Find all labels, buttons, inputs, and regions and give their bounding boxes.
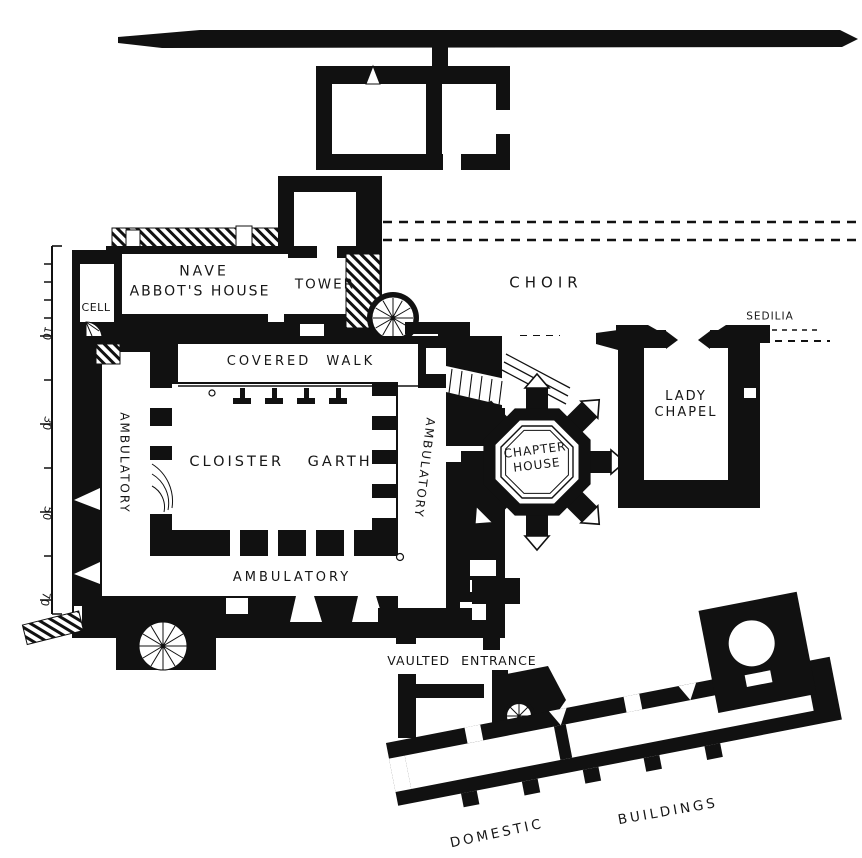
label-cell: CELL bbox=[82, 301, 111, 315]
nave-block bbox=[72, 176, 390, 352]
label-lady-chapel: LADY CHAPEL bbox=[654, 389, 717, 422]
scale-tick-10: 10 bbox=[39, 325, 55, 341]
label-nave: NAVE bbox=[179, 263, 229, 281]
label-ambulatory-west: AMBULATORY bbox=[117, 412, 132, 514]
label-lady-chapel-line2: CHAPEL bbox=[654, 405, 717, 421]
scale-tick-70: 70 bbox=[37, 591, 53, 607]
gatehouse bbox=[316, 44, 511, 172]
label-tower: TOWER bbox=[295, 277, 355, 294]
scale-tick-50: 50 bbox=[39, 505, 55, 521]
abbey-ground-plan: NAVE ABBOT'S HOUSE CELL TOWER CHOIR SEDI… bbox=[0, 0, 862, 858]
label-cloister-garth: CLOISTER GARTH bbox=[189, 453, 372, 471]
label-sedilia: SEDILIA bbox=[746, 310, 794, 323]
cloister bbox=[72, 336, 505, 638]
label-vaulted-entrance: VAULTED ENTRANCE bbox=[387, 653, 536, 669]
scale-tick-30: 30 bbox=[39, 415, 55, 431]
label-ambulatory-south: AMBULATORY bbox=[233, 570, 351, 586]
label-abbots-house: ABBOT'S HOUSE bbox=[130, 283, 271, 301]
precinct-wall bbox=[118, 30, 858, 48]
label-lady-chapel-line1: LADY bbox=[654, 389, 717, 405]
label-choir: CHOIR bbox=[509, 274, 582, 293]
stair-turret-southwest bbox=[116, 596, 216, 670]
label-covered-walk: COVERED WALK bbox=[227, 354, 375, 370]
ground-hachure bbox=[22, 611, 83, 644]
